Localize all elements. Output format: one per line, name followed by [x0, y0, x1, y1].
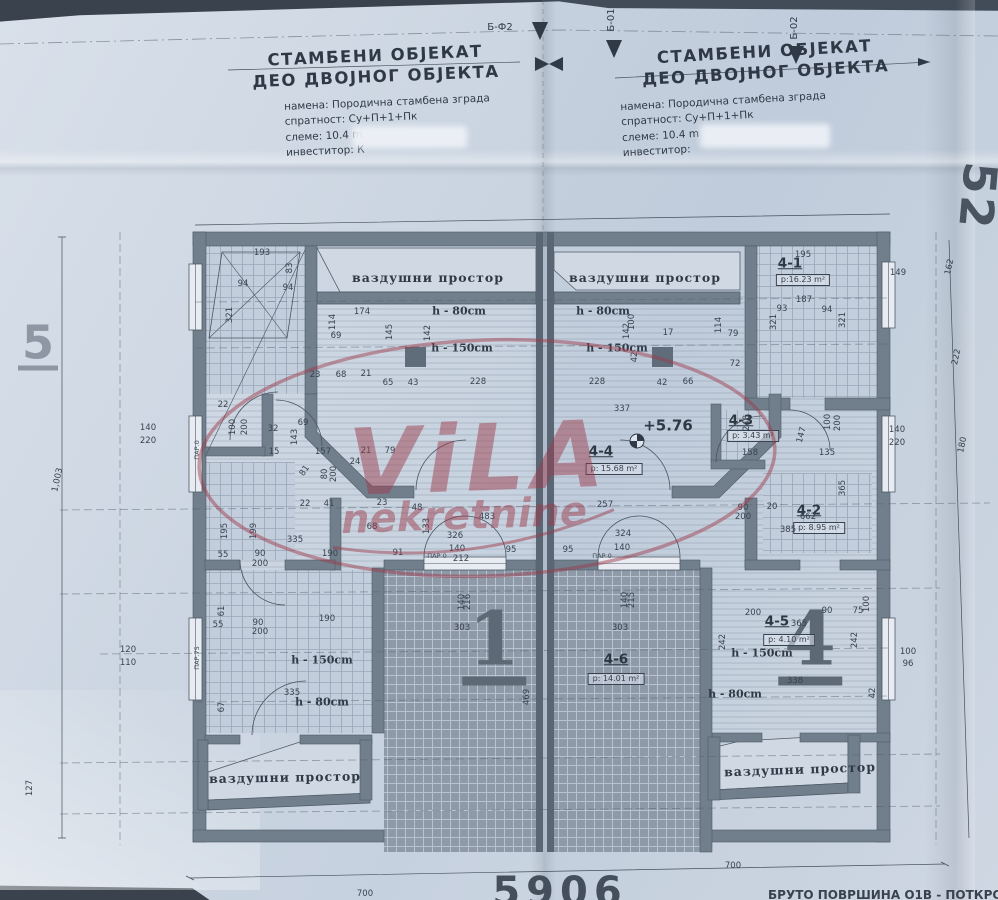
dim-label: 1,003: [51, 467, 64, 493]
dim-label: 222: [951, 348, 963, 366]
dim-label: 257: [597, 501, 613, 510]
dim-label: 335: [284, 689, 300, 698]
dim-label: 140: [889, 426, 905, 435]
air-label: ваздушни простор: [724, 761, 876, 779]
dim-label: 199: [250, 523, 259, 539]
dim-label: 93: [777, 305, 788, 314]
dim-label: 326: [447, 532, 463, 541]
dim-label: 338: [787, 677, 803, 686]
hl-label: h - 80cm: [432, 306, 486, 317]
abox-label: р: 8.95 m²: [793, 522, 845, 534]
dim-label: 65: [383, 379, 394, 388]
dim-label: 23: [310, 371, 321, 380]
dim-label: 337: [614, 405, 630, 414]
ax-label: Б-02: [790, 16, 800, 39]
dim-label: 91: [393, 549, 404, 558]
privacy-blur: [700, 124, 830, 148]
dim-label: 216: [464, 594, 473, 610]
dim-label: 145: [386, 324, 395, 340]
dim-label: 114: [715, 317, 724, 333]
dim-label: 158: [742, 449, 758, 458]
dim-label: 94: [283, 284, 294, 293]
win-label: ПАР.75: [194, 646, 201, 670]
dim-label: 193: [254, 249, 270, 258]
dim-label: 220: [140, 437, 156, 446]
abox-label: р: 14.01 m²: [588, 673, 645, 685]
dim-label: 140: [449, 545, 465, 554]
dim-label: 22: [300, 500, 311, 509]
dim-label: 190: [319, 615, 335, 624]
dim-label: 100: [900, 648, 916, 657]
dim-label: 248: [743, 415, 752, 431]
abox-label: р:16.23 m²: [776, 274, 830, 286]
big52-label: 52: [952, 160, 998, 232]
dim-label: 79: [385, 447, 396, 456]
dim-label: 68: [367, 523, 378, 532]
win-label: ПАР 0: [592, 553, 611, 560]
dim-label: 94: [822, 306, 833, 315]
bignum-label: 1: [462, 603, 526, 686]
dim-label: 662: [800, 513, 816, 522]
dim-label: 48: [412, 504, 423, 513]
elev-label: +5.76: [643, 419, 693, 434]
dim-label: 72: [730, 360, 741, 369]
dim-label: 143: [291, 429, 300, 445]
dim-label: 15: [269, 448, 280, 457]
win-label: ПАР 0: [427, 553, 446, 560]
dim-label: 95: [563, 546, 574, 555]
dim-label: 20: [767, 503, 778, 512]
hl-label: h - 80cm: [576, 306, 630, 317]
dim-label: 200: [330, 466, 339, 482]
hl-label: h - 80cm: [295, 697, 349, 708]
dim-label: 149: [890, 269, 906, 278]
dim-label: 135: [819, 449, 835, 458]
dim-label: 200: [252, 628, 268, 637]
dim-label: 700: [357, 890, 373, 899]
dim-label: 220: [889, 439, 905, 448]
dim-label: 215: [628, 592, 637, 608]
dim-label: 303: [454, 624, 470, 633]
dim-label: 469: [523, 689, 532, 705]
dim-label: 157: [315, 448, 331, 457]
dim-label: 140: [614, 544, 630, 553]
dim-label: 200: [834, 415, 843, 431]
dim-label: 43: [408, 379, 419, 388]
dim-label: 228: [470, 378, 486, 387]
dim-label: 21: [361, 370, 372, 379]
rid-label: 4-4: [589, 445, 613, 459]
dim-label: 100: [863, 596, 872, 612]
dim-label: 100: [229, 419, 238, 435]
dim-label: 365: [791, 620, 807, 629]
dim-label: 42: [631, 352, 640, 363]
dim-label: 162: [944, 258, 956, 276]
dim-label: 90: [255, 550, 266, 559]
hl-label: h - 150cm: [431, 343, 493, 354]
hl-label: h - 150cm: [731, 648, 793, 659]
dim-label: 90: [822, 607, 833, 616]
dim-label: 68: [336, 371, 347, 380]
dim-label: 228: [589, 378, 605, 387]
dim-label: 22: [218, 401, 229, 410]
dim-label: 67: [218, 702, 227, 713]
dim-label: 242: [719, 634, 728, 650]
dim-label: 324: [615, 530, 631, 539]
dim-label: 127: [26, 780, 35, 796]
dim-label: 24: [350, 458, 361, 467]
dim-label: 142: [424, 325, 433, 341]
dim-label: 66: [683, 378, 694, 387]
dim-label: 21: [361, 447, 372, 456]
rid-label: 4-5: [765, 615, 789, 629]
dim-label: 96: [903, 660, 914, 669]
dim-label: 120: [120, 646, 136, 655]
dim-label: 100: [824, 414, 833, 430]
blueprint-photo: СТАМБЕНИ ОБЈЕКАТДЕО ДВОЈНОГ ОБЈЕКТА наме…: [0, 0, 998, 900]
dim-label: 321: [770, 314, 779, 330]
dim-label: 385: [780, 526, 796, 535]
dim-label: 200: [735, 513, 751, 522]
dim-label: 321: [226, 307, 235, 323]
privacy-blur: [352, 126, 467, 148]
dim-label: 94: [238, 280, 249, 289]
dim-label: 55: [213, 621, 224, 630]
air-label: ваздушни простор: [352, 272, 504, 285]
dim-label: 212: [453, 555, 469, 564]
dim-label: 242: [851, 632, 860, 648]
dim-label: 42: [657, 379, 668, 388]
dim-label: 41: [324, 500, 335, 509]
hl-label: h - 80cm: [708, 689, 762, 700]
dim-label: 147: [796, 426, 808, 444]
air-label: ваздушни простор: [569, 272, 721, 285]
dim-label: 95: [506, 546, 517, 555]
dim-label: 195: [795, 251, 811, 260]
dim-label: 200: [241, 419, 250, 435]
dim-label: 69: [331, 332, 342, 341]
win-label: ПАР.0: [194, 440, 201, 459]
dim-label: 195: [221, 523, 230, 539]
dim-label: 335: [287, 536, 303, 545]
dim-label: 700: [725, 862, 741, 871]
dim-label: 190: [322, 550, 338, 559]
dim-label: 321: [839, 312, 848, 328]
dim-label: 17: [663, 329, 674, 338]
dim-label: 187: [796, 296, 812, 305]
hl-label: h - 150cm: [291, 655, 353, 666]
dim-label: 23: [377, 499, 388, 508]
dim-label: 133: [423, 518, 432, 534]
dim-label: 110: [120, 659, 136, 668]
dim-label: 55: [218, 551, 229, 560]
dim-label: 81: [298, 464, 311, 478]
abox-label: р: 15.68 m²: [586, 463, 643, 475]
rid-label: 4-6: [604, 653, 628, 667]
dim-label: 61: [218, 606, 227, 617]
cutnum-label: 5906: [492, 872, 627, 900]
dim-label: 140: [140, 424, 156, 433]
dim-label: 83: [286, 263, 295, 274]
dim-label: 42: [869, 688, 878, 699]
abox-label: р: 3.43 m²: [727, 430, 779, 442]
dim-label: 365: [839, 480, 848, 496]
dim-label: 69: [298, 419, 309, 428]
air-label: ваздушни простор: [209, 770, 361, 785]
label-layer: Б-Ф2Б-01Б-02552145906+5.764-4р: 15.68 m²…: [0, 0, 998, 900]
dim-label: 174: [354, 308, 370, 317]
dim-label: 200: [745, 609, 761, 618]
dim-label: 114: [329, 314, 338, 330]
dim-label: 200: [252, 560, 268, 569]
dim-label: 142: [623, 323, 632, 339]
dim-label: 483: [479, 513, 495, 522]
dim-label: 32: [268, 425, 279, 434]
dim-label: 303: [612, 624, 628, 633]
abox-label: р: 4.10 m²: [763, 634, 815, 646]
bottom-caption: БРУТО ПОВРШИНА О1В - ПОТКРОВЉА: [768, 888, 998, 900]
dim-label: 180: [957, 436, 969, 454]
big5-label: 5: [18, 320, 58, 371]
ax-label: Б-Ф2: [487, 23, 512, 33]
ax-label: Б-01: [607, 8, 617, 31]
dim-label: 79: [728, 330, 739, 339]
